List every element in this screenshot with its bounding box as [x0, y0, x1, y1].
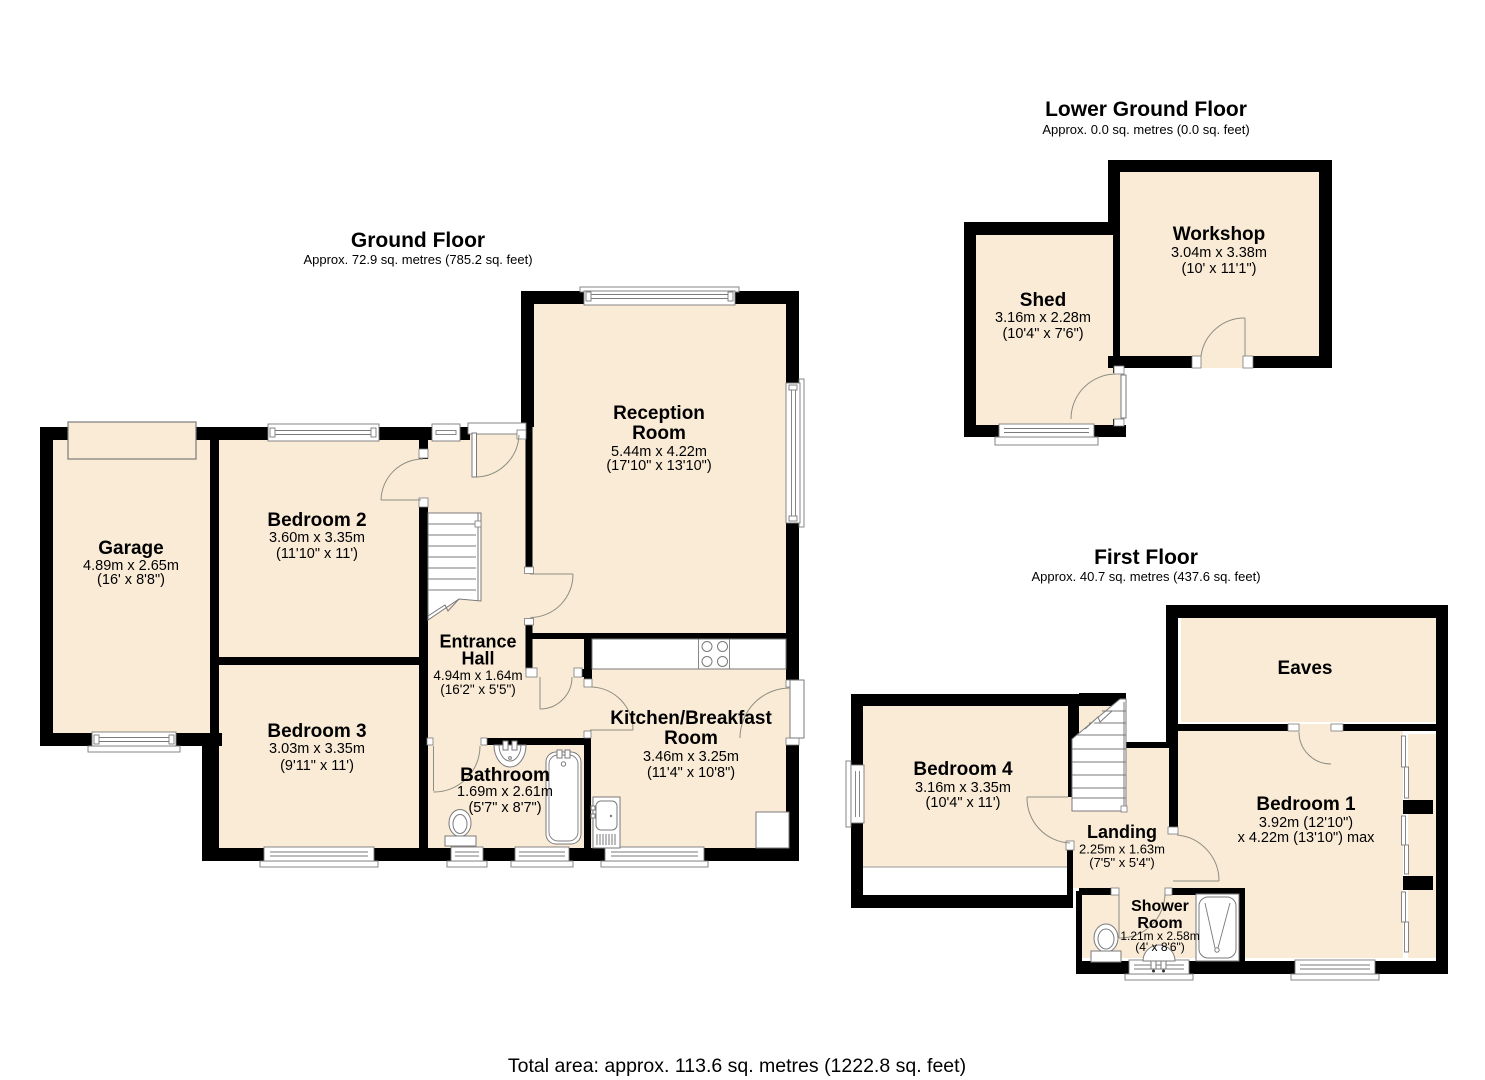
svg-text:(9'11" x 11'): (9'11" x 11')	[280, 758, 354, 774]
svg-text:Bathroom: Bathroom	[460, 765, 550, 786]
svg-text:3.60m x 3.35m: 3.60m x 3.35m	[269, 530, 365, 546]
svg-text:Bedroom 1: Bedroom 1	[1256, 794, 1356, 815]
svg-text:3.16m x 2.28m: 3.16m x 2.28m	[995, 310, 1091, 326]
svg-text:3.92m (12'10"): 3.92m (12'10")	[1259, 815, 1353, 831]
svg-text:Approx. 40.7 sq. metres (437.6: Approx. 40.7 sq. metres (437.6 sq. feet)	[1031, 569, 1260, 584]
svg-text:(7'5" x 5'4"): (7'5" x 5'4")	[1089, 855, 1155, 870]
svg-text:(10'4" x 11'): (10'4" x 11')	[926, 795, 1001, 811]
svg-text:Total area: approx. 113.6 sq.: Total area: approx. 113.6 sq. metres (12…	[508, 1055, 966, 1077]
svg-text:Eaves: Eaves	[1278, 658, 1333, 679]
svg-text:x 4.22m (13'10") max: x 4.22m (13'10") max	[1238, 830, 1376, 846]
svg-text:Room: Room	[664, 728, 718, 749]
svg-text:Approx. 0.0 sq. metres (0.0 sq: Approx. 0.0 sq. metres (0.0 sq. feet)	[1042, 122, 1249, 137]
svg-text:Approx. 72.9 sq. metres (785.2: Approx. 72.9 sq. metres (785.2 sq. feet)	[303, 252, 532, 267]
svg-text:3.16m x 3.35m: 3.16m x 3.35m	[915, 780, 1011, 796]
svg-text:3.04m x 3.38m: 3.04m x 3.38m	[1171, 245, 1267, 261]
svg-text:Hall: Hall	[461, 649, 494, 669]
svg-text:Bedroom 3: Bedroom 3	[267, 721, 366, 742]
svg-text:(10' x 11'1"): (10' x 11'1")	[1182, 261, 1257, 277]
svg-text:(4' x 8'6"): (4' x 8'6")	[1135, 940, 1185, 954]
svg-text:Kitchen/Breakfast: Kitchen/Breakfast	[610, 708, 772, 729]
svg-text:Landing: Landing	[1087, 822, 1157, 842]
svg-text:Garage: Garage	[98, 538, 163, 559]
svg-text:4.94m x 1.64m: 4.94m x 1.64m	[433, 668, 522, 683]
svg-text:3.46m x 3.25m: 3.46m x 3.25m	[643, 749, 739, 765]
svg-text:(10'4" x 7'6"): (10'4" x 7'6")	[1002, 326, 1083, 342]
svg-text:(16' x 8'8"): (16' x 8'8")	[97, 572, 165, 588]
svg-text:Shower: Shower	[1131, 898, 1189, 915]
svg-text:Workshop: Workshop	[1173, 224, 1266, 245]
svg-text:Lower Ground Floor: Lower Ground Floor	[1045, 98, 1247, 121]
svg-text:(16'2" x 5'5"): (16'2" x 5'5")	[440, 682, 516, 697]
svg-text:(5'7" x 8'7"): (5'7" x 8'7")	[468, 800, 541, 816]
svg-text:(17'10" x 13'10"): (17'10" x 13'10")	[606, 458, 711, 474]
svg-text:Reception: Reception	[613, 403, 705, 424]
svg-text:Shed: Shed	[1020, 290, 1066, 311]
svg-text:Bedroom 2: Bedroom 2	[267, 510, 366, 531]
svg-text:Ground Floor: Ground Floor	[351, 229, 485, 252]
svg-text:Bedroom 4: Bedroom 4	[913, 759, 1013, 780]
svg-text:First Floor: First Floor	[1094, 546, 1198, 569]
svg-text:1.69m x 2.61m: 1.69m x 2.61m	[457, 784, 553, 800]
svg-text:(11'4" x 10'8"): (11'4" x 10'8")	[647, 765, 735, 781]
svg-text:Room: Room	[632, 423, 686, 444]
svg-text:3.03m x 3.35m: 3.03m x 3.35m	[269, 741, 365, 757]
svg-text:(11'10" x 11'): (11'10" x 11')	[276, 546, 358, 562]
